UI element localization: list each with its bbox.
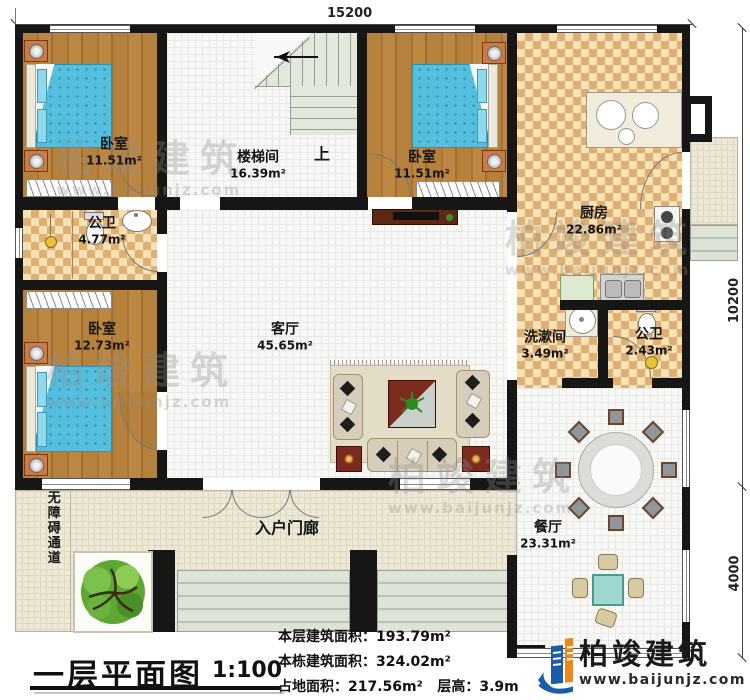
shower-hose — [50, 214, 51, 238]
watermark: 柏竣建筑 www.baijunjz.com — [388, 446, 580, 517]
wall — [130, 478, 203, 490]
room-label-bedroom2: 卧室 11.51m² — [394, 149, 450, 180]
bed-headboard — [488, 64, 498, 148]
nightstand — [24, 150, 48, 172]
stats-line-3: 占地面积：217.56m² 层高：3.9m — [278, 675, 519, 700]
dimension-right-upper-label: 10200 — [727, 278, 742, 323]
dimension-line-right-upper — [742, 28, 743, 487]
shower-drain-icon — [45, 236, 57, 248]
wall — [157, 210, 167, 234]
dining-table-inner — [590, 444, 642, 496]
sink-faucet — [134, 213, 138, 217]
dining-chair — [608, 409, 624, 425]
brand-name: 柏竣建筑 — [579, 640, 746, 669]
window — [682, 410, 690, 487]
ramp-divider-line — [70, 490, 71, 632]
watermark: 柏竣建筑 www.baijunjz.com — [56, 128, 248, 199]
tea-chair — [598, 554, 618, 570]
room-label-kitchen: 厨房 22.86m² — [566, 205, 622, 236]
bed-pillow — [37, 412, 47, 447]
door-stop-icon — [645, 356, 658, 369]
tea-chair — [572, 578, 588, 598]
window — [15, 228, 23, 258]
bed-headboard — [26, 64, 36, 148]
sofa-right — [456, 370, 490, 438]
bed-pillow — [37, 69, 47, 103]
brand-url: www.baijunjz.com — [579, 672, 746, 688]
window — [42, 478, 130, 490]
wall — [562, 378, 613, 388]
bed-pillow — [477, 69, 487, 103]
washroom-sink-drain — [579, 317, 584, 322]
room-label-living: 客厅 45.65m² — [257, 321, 313, 352]
wall — [15, 478, 42, 490]
stats-line-1: 本层建筑面积：193.79m² — [278, 625, 519, 650]
stairs-up-arrow-icon — [258, 48, 322, 66]
nightstand — [24, 454, 48, 476]
bed-pillow — [37, 109, 47, 143]
wall — [157, 450, 167, 478]
room-label-dining: 餐厅 23.31m² — [520, 519, 576, 550]
brand-logo: 柏竣建筑 www.baijunjz.com — [534, 632, 746, 696]
extension-line — [15, 8, 16, 24]
stats-block: 本层建筑面积：193.79m² 本栋建筑面积：324.02m² 占地面积：217… — [278, 625, 519, 700]
porch-steps-left — [177, 570, 350, 632]
flue-column — [684, 96, 712, 142]
stairs-up-label: 上 — [314, 144, 330, 163]
wall — [652, 378, 690, 388]
window — [557, 25, 657, 33]
room-label-porch: 入户门廊 — [255, 518, 319, 537]
kitchen-bowl — [632, 102, 659, 129]
tv-cabinet — [372, 209, 458, 225]
shower-divider — [72, 211, 73, 279]
wall — [507, 25, 517, 212]
tea-chair — [628, 578, 644, 598]
tv-icon — [393, 212, 439, 220]
stairs-lower-flight — [290, 86, 358, 135]
porch-steps-right — [377, 570, 517, 632]
wall — [598, 300, 608, 388]
tree-icon — [75, 553, 151, 631]
nightstand — [24, 40, 48, 62]
side-entrance-landing — [690, 137, 738, 225]
nightstand — [24, 342, 48, 364]
nightstand — [482, 150, 506, 172]
title-underline — [30, 686, 280, 690]
plant-dot-icon — [446, 214, 453, 221]
kitchen-bowl — [596, 100, 626, 130]
room-label-bedroom3: 卧室 12.73m² — [74, 321, 130, 352]
scale-label: 1:100 — [212, 658, 282, 683]
kitchen-bowl-small — [618, 128, 635, 145]
tea-table — [592, 574, 624, 606]
window — [682, 550, 690, 622]
window — [395, 25, 475, 33]
dining-chair — [661, 462, 677, 478]
wall — [357, 25, 367, 197]
plant-icon — [398, 390, 426, 418]
wall — [412, 197, 517, 210]
tree-planter — [73, 551, 153, 633]
floor-plan-page: 15200 10200 4000 — [0, 0, 750, 700]
wall — [15, 280, 167, 290]
washing-machine — [560, 275, 594, 303]
brand-text: 柏竣建筑 www.baijunjz.com — [579, 640, 746, 688]
room-label-stairwell: 楼梯间 16.39m² — [230, 149, 286, 180]
bed — [412, 64, 498, 148]
bed-headboard — [26, 366, 36, 452]
wall — [608, 300, 682, 310]
wardrobe — [26, 291, 112, 309]
bed-pillow — [477, 109, 487, 143]
dimension-top-label: 15200 — [327, 6, 372, 21]
porch-column — [350, 550, 377, 632]
nightstand — [482, 42, 506, 64]
dining-chair — [608, 515, 624, 531]
side-entrance-steps — [690, 225, 738, 261]
room-label-bathroom2: 公卫 2.43m² — [625, 326, 672, 357]
title-underline-shadow — [34, 692, 284, 694]
room-label-washroom: 洗漱间 3.49m² — [521, 329, 568, 360]
stats-line-2: 本栋建筑面积：324.02m² — [278, 650, 519, 675]
room-label-ramp: 无障碍通道 — [44, 491, 60, 566]
sofa-left — [333, 374, 363, 440]
side-table — [336, 446, 362, 472]
brand-logo-icon — [534, 634, 573, 694]
room-label-bedroom1: 卧室 11.51m² — [86, 136, 142, 167]
wall — [682, 487, 690, 550]
dimension-right-lower-label: 4000 — [728, 555, 743, 591]
window — [50, 25, 130, 33]
room-label-bathroom1: 公卫 4.77m² — [78, 215, 125, 246]
